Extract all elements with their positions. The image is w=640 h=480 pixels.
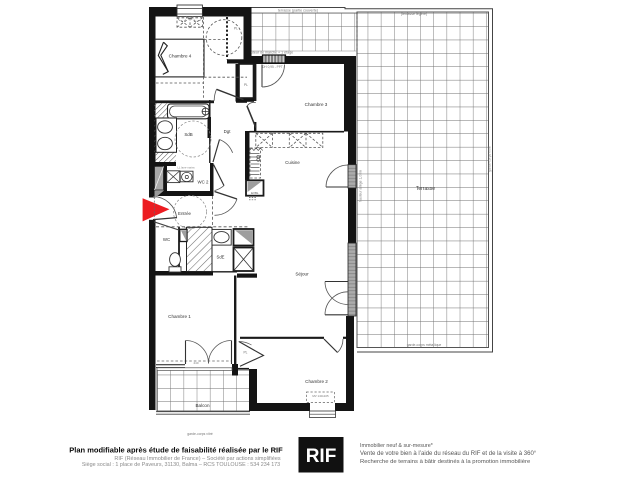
svg-text:Balcon: Balcon xyxy=(195,403,209,408)
svg-text:MV 140x105: MV 140x105 xyxy=(312,394,329,398)
svg-text:Chambre 1: Chambre 1 xyxy=(168,314,191,319)
svg-text:Chambre 4: Chambre 4 xyxy=(169,54,192,59)
svg-text:Siège social : 1 place de Pave: Siège social : 1 place de Paveurs, 31130… xyxy=(82,462,280,468)
svg-text:RIF (Réseau Immobilier de Fran: RIF (Réseau Immobilier de France) – Soci… xyxy=(114,456,281,462)
svg-text:WC: WC xyxy=(163,237,170,242)
svg-text:Cuisine: Cuisine xyxy=(285,160,300,165)
svg-text:SdB: SdB xyxy=(184,132,192,137)
svg-text:terrasse (partie couverte): terrasse (partie couverte) xyxy=(278,9,318,13)
svg-text:Plan modifiable après étude de: Plan modifiable après étude de faisabili… xyxy=(69,446,283,455)
svg-text:RIF: RIF xyxy=(306,446,337,467)
svg-text:PL: PL xyxy=(234,27,238,31)
svg-text:PL: PL xyxy=(244,83,248,87)
svg-text:Terrasse: Terrasse xyxy=(416,186,435,192)
svg-text:EVBL: EVBL xyxy=(251,191,259,195)
svg-text:240: 240 xyxy=(193,361,198,365)
svg-text:LL lave-mains: LL lave-mains xyxy=(177,165,195,169)
svg-text:Immobilier neuf & sur-mesure*: Immobilier neuf & sur-mesure* xyxy=(360,443,434,449)
svg-text:garde-corps vitré: garde-corps vitré xyxy=(187,432,213,436)
svg-text:PL: PL xyxy=(244,351,248,355)
svg-text:Séjour: Séjour xyxy=(295,271,309,276)
svg-text:Entrée: Entrée xyxy=(178,211,191,216)
svg-text:hauteur de marche + 1 étage: hauteur de marche + 1 étage xyxy=(247,50,293,54)
svg-text:Chambre 2: Chambre 2 xyxy=(305,379,328,384)
svg-text:SdE: SdE xyxy=(217,254,225,259)
svg-text:(terrasse légère): (terrasse légère) xyxy=(401,12,427,16)
svg-text:Recherche de terrains à bâtir: Recherche de terrains à bâtir destinés à… xyxy=(360,459,531,465)
svg-text:garde-corps vitré: garde-corps vitré xyxy=(488,146,492,172)
svg-text:DH 0,95 - PPT: DH 0,95 - PPT xyxy=(262,65,283,69)
svg-text:hauteur allège 1,00m: hauteur allège 1,00m xyxy=(359,170,363,202)
svg-text:Chambre 3: Chambre 3 xyxy=(305,102,328,107)
svg-text:garde-corps métallique: garde-corps métallique xyxy=(407,343,442,347)
svg-text:Vente de votre bien à l’aide d: Vente de votre bien à l’aide du réseau d… xyxy=(360,451,537,457)
svg-text:WC 2: WC 2 xyxy=(198,180,210,185)
svg-text:Dgt: Dgt xyxy=(224,129,232,134)
